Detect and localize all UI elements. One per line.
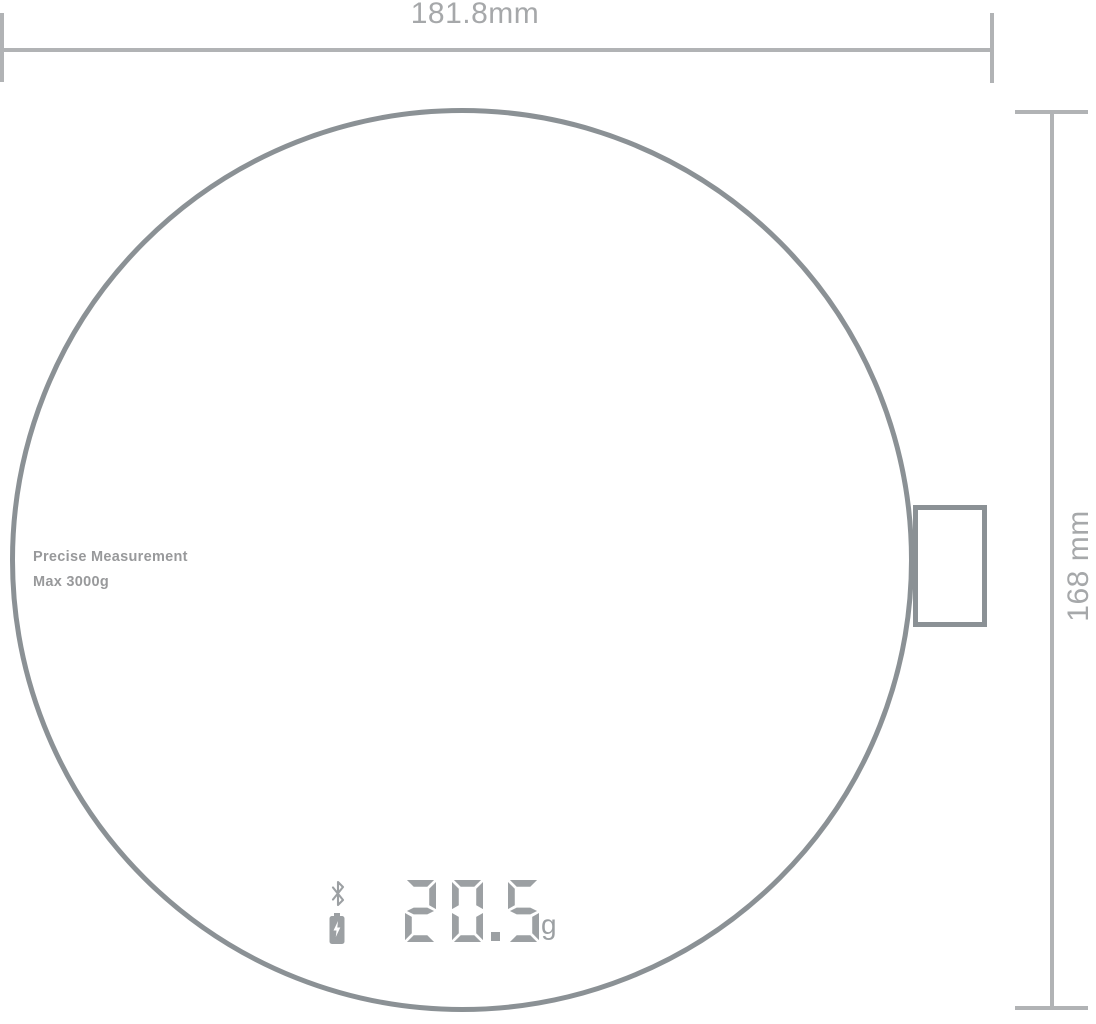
scale-print-line1: Precise Measurement	[33, 545, 188, 570]
display-value	[405, 880, 539, 942]
height-dimension-tick-top	[1015, 110, 1088, 114]
width-dimension-tick-left	[0, 13, 4, 82]
battery-charging-icon	[329, 913, 345, 945]
display-digit-5	[508, 880, 539, 942]
product-dimension-diagram: 181.8mm 168 mm Precise Measurement Max 3…	[0, 0, 1096, 1024]
scale-handle-tab	[913, 505, 987, 627]
bluetooth-icon	[330, 880, 346, 907]
lcd-status-icons	[329, 880, 347, 945]
height-dimension-line	[1050, 111, 1054, 1008]
display-decimal-point	[491, 932, 500, 941]
scale-print-line2: Max 3000g	[33, 570, 188, 595]
scale-print-text: Precise Measurement Max 3000g	[33, 545, 188, 595]
width-dimension-tick-right	[990, 13, 994, 83]
width-dimension-label: 181.8mm	[411, 0, 540, 31]
height-dimension-tick-bottom	[1015, 1006, 1088, 1010]
display-unit: g	[541, 911, 557, 939]
display-digit-0	[452, 880, 483, 942]
height-dimension-label: 168 mm	[1062, 510, 1096, 621]
width-dimension-line	[0, 48, 994, 52]
display-digit-2	[405, 880, 436, 942]
